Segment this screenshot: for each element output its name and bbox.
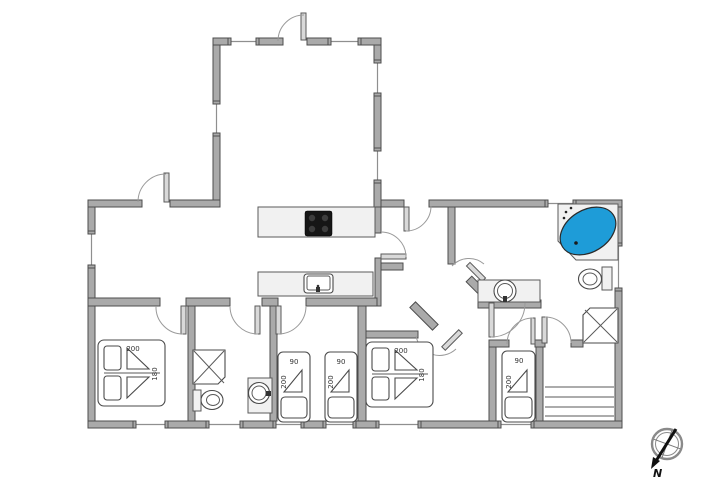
- shower-icon: [193, 350, 225, 384]
- bed-dimension-label: 90: [290, 358, 299, 366]
- bed-dimension-label: 180: [151, 367, 159, 380]
- toilet-icon: [193, 390, 223, 411]
- stairs: [545, 387, 614, 416]
- kitchen-island: [258, 207, 375, 237]
- bed-dimension-label: 200: [327, 375, 335, 388]
- bathroom-right: [478, 197, 625, 343]
- bed-dimension-label: 180: [418, 368, 426, 381]
- bed-dimension-label: 200: [126, 345, 139, 353]
- single-bed-1: 90 200: [278, 352, 310, 422]
- bed-dimension-label: 200: [394, 347, 407, 355]
- bed-dimension-label: 90: [337, 358, 346, 366]
- floor-plan: 200 180 90 200 90 200 200 180 90 200: [0, 0, 718, 479]
- kitchen-counter: [258, 272, 373, 296]
- corner-shower-icon: [583, 308, 618, 343]
- double-bed-2: 200 180: [366, 342, 433, 407]
- compass: N: [651, 429, 682, 479]
- single-bed-3: 90 200: [502, 351, 535, 422]
- washbasin-icon: [478, 280, 540, 302]
- kitchen-sink-icon: [304, 274, 333, 293]
- bed-dimension-label: 200: [280, 375, 288, 388]
- single-bed-2: 90 200: [325, 352, 357, 422]
- toilet-icon: [579, 267, 613, 290]
- washbasin-icon: [248, 378, 272, 413]
- floor-plan-page: 200 180 90 200 90 200 200 180 90 200: [0, 0, 718, 479]
- spa-bathtub: [551, 197, 624, 264]
- double-bed-1: 200 180: [98, 340, 165, 406]
- cooktop-icon: [305, 211, 332, 236]
- bed-dimension-label: 90: [515, 357, 524, 365]
- bed-dimension-label: 200: [505, 375, 513, 388]
- bathroom-left: [193, 350, 272, 413]
- north-label: N: [653, 467, 662, 479]
